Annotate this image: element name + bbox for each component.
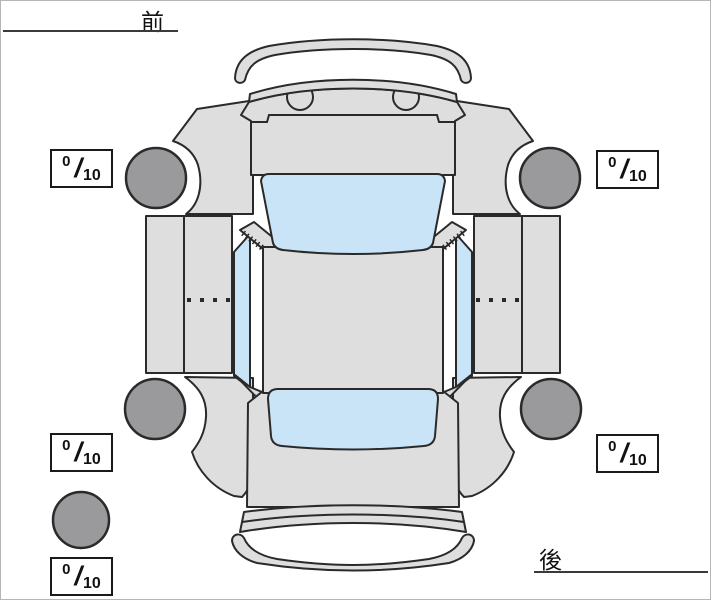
fraction-slash: / xyxy=(621,154,629,185)
tread-value: 0 xyxy=(608,154,616,171)
rear-bumper xyxy=(232,534,474,570)
tread-rating-spare[interactable]: 0 / 10 xyxy=(50,557,113,596)
front-right-fender xyxy=(453,101,533,214)
left-sill-panel xyxy=(146,216,184,373)
car-top-view xyxy=(1,1,711,600)
tread-max: 10 xyxy=(629,452,647,470)
spare-tire[interactable] xyxy=(53,492,109,548)
front-right-tire[interactable] xyxy=(520,148,580,208)
tread-rating-rear-right[interactable]: 0 / 10 xyxy=(596,434,659,473)
fraction-slash: / xyxy=(75,437,83,468)
left-side-window xyxy=(234,234,250,388)
tread-max: 10 xyxy=(629,168,647,186)
tire-condition-diagram: 前 後 xyxy=(0,0,711,600)
front-left-fender xyxy=(173,101,253,214)
tread-value: 0 xyxy=(62,153,70,170)
roof-panel xyxy=(263,247,443,393)
left-door-panel xyxy=(184,216,232,373)
rear-right-fender xyxy=(453,377,521,497)
windshield xyxy=(261,174,445,254)
fraction-slash: / xyxy=(75,561,83,592)
tread-rating-rear-left[interactable]: 0 / 10 xyxy=(50,433,113,472)
front-bumper xyxy=(235,39,471,83)
fraction-slash: / xyxy=(75,153,83,184)
tread-rating-front-right[interactable]: 0 / 10 xyxy=(596,150,659,189)
hood-panel xyxy=(241,89,465,176)
tread-max: 10 xyxy=(83,167,101,185)
rear-left-fender xyxy=(185,377,253,497)
rear-right-tire[interactable] xyxy=(521,379,581,439)
right-side-window xyxy=(456,234,472,388)
front-left-tire[interactable] xyxy=(126,148,186,208)
rear-left-tire[interactable] xyxy=(125,379,185,439)
tread-rating-front-left[interactable]: 0 / 10 xyxy=(50,149,113,188)
tread-value: 0 xyxy=(608,438,616,455)
tread-max: 10 xyxy=(83,575,101,593)
rear-window xyxy=(268,389,438,450)
right-sill-panel xyxy=(522,216,560,373)
right-door-panel xyxy=(474,216,522,373)
tread-max: 10 xyxy=(83,451,101,469)
tread-value: 0 xyxy=(62,561,70,578)
tread-value: 0 xyxy=(62,437,70,454)
fraction-slash: / xyxy=(621,438,629,469)
